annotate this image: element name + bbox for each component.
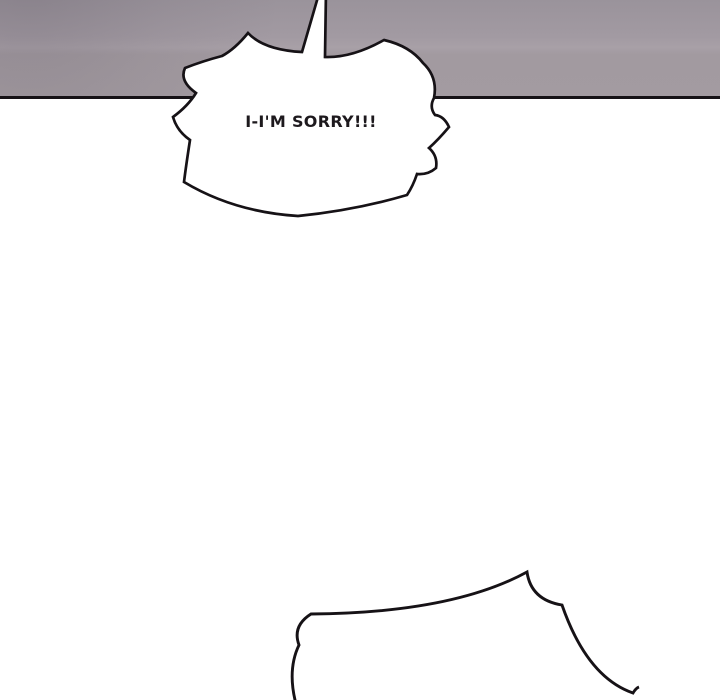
comic-panel-artwork: [0, 0, 720, 700]
bottom-partial-bubble-outline: [292, 572, 639, 700]
comic-panel: I-I'M SORRY!!!: [0, 0, 720, 700]
shout-bubble-text: I-I'M SORRY!!!: [217, 110, 405, 134]
